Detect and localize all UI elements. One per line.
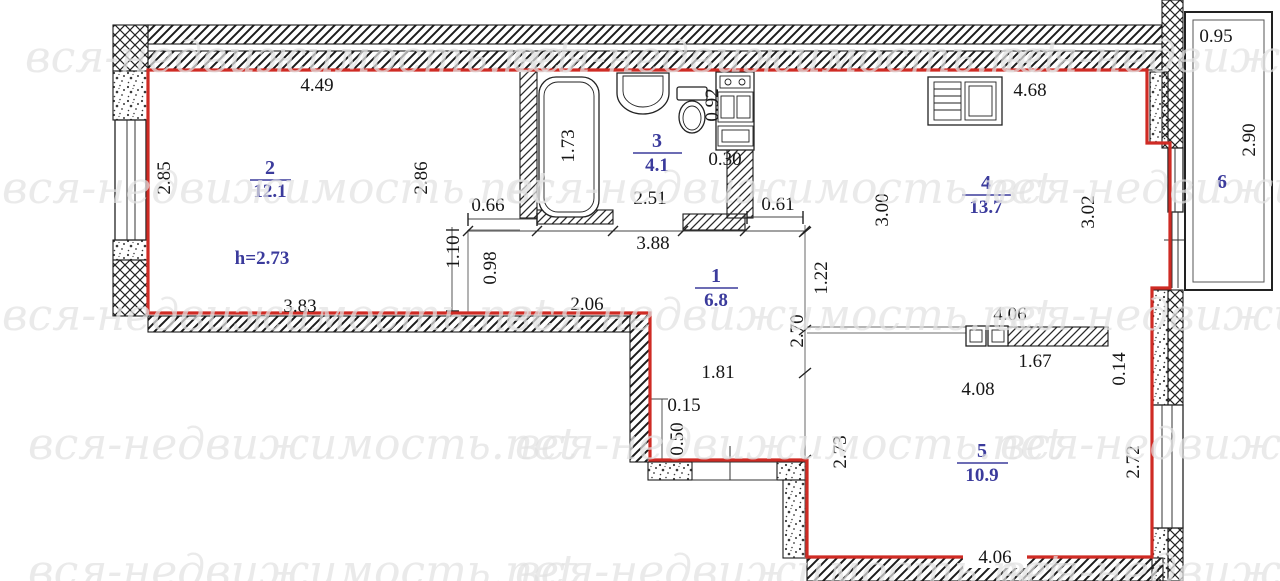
floor-plan: 4.49 2.85 2.86 3.83 1.73 0.92 0.30 2.51 … — [0, 0, 1280, 581]
dim-closet-width: 1.67 — [1018, 351, 1051, 372]
dim-nook-width: 0.98 — [480, 251, 501, 284]
watermark-text: вся-недвижимость.net — [992, 290, 1280, 341]
ceiling-height-note: h=2.73 — [235, 248, 290, 269]
watermark-text: вся-недвижимость.net — [515, 419, 1064, 470]
watermark-text: вся-недвижимость.net — [2, 290, 551, 341]
watermark-text: вся-недвижимость.net — [992, 163, 1280, 214]
watermark-text: вся-недвижимость.net — [515, 546, 1064, 581]
watermark-text: вся-недвижимость.net — [1000, 419, 1280, 470]
dim-hall-lower-width: 1.81 — [701, 362, 734, 383]
dim-closet-gap: 0.14 — [1109, 352, 1130, 386]
dim-tub-length: 1.73 — [558, 129, 579, 162]
watermark-text: вся-недвижимость.net — [999, 32, 1280, 83]
watermark-text: вся-недвижимость.net — [505, 163, 1054, 214]
dim-balcony-length: 2.90 — [1239, 123, 1260, 156]
watermark-text: вся-недвижимость.net — [2, 163, 551, 214]
dim-room4-top: 4.68 — [1013, 80, 1046, 101]
wall-left-pier-mid — [113, 240, 148, 260]
room1-number: 1 — [711, 265, 721, 287]
watermark-text: вся-недвижимость.net — [1000, 546, 1280, 581]
watermark-text: вся-недвижимость.net — [28, 546, 577, 581]
dim-bath-total: 3.88 — [636, 233, 669, 254]
watermark-text: вся-недвижимость.net — [512, 32, 1061, 83]
watermark-text: вся-недвижимость.net — [505, 290, 1054, 341]
dim-room5-inner: 4.08 — [961, 379, 994, 400]
room3-number: 3 — [652, 130, 662, 152]
dim-step-width: 0.15 — [667, 395, 700, 416]
dim-stove-depth: 0.92 — [702, 88, 723, 121]
watermark-text: вся-недвижимость.net — [25, 32, 574, 83]
dim-nook-height: 1.10 — [443, 235, 464, 268]
watermark-text: вся-недвижимость.net — [28, 419, 577, 470]
floor-plan-canvas: 4.49 2.85 2.86 3.83 1.73 0.92 0.30 2.51 … — [0, 0, 1280, 581]
